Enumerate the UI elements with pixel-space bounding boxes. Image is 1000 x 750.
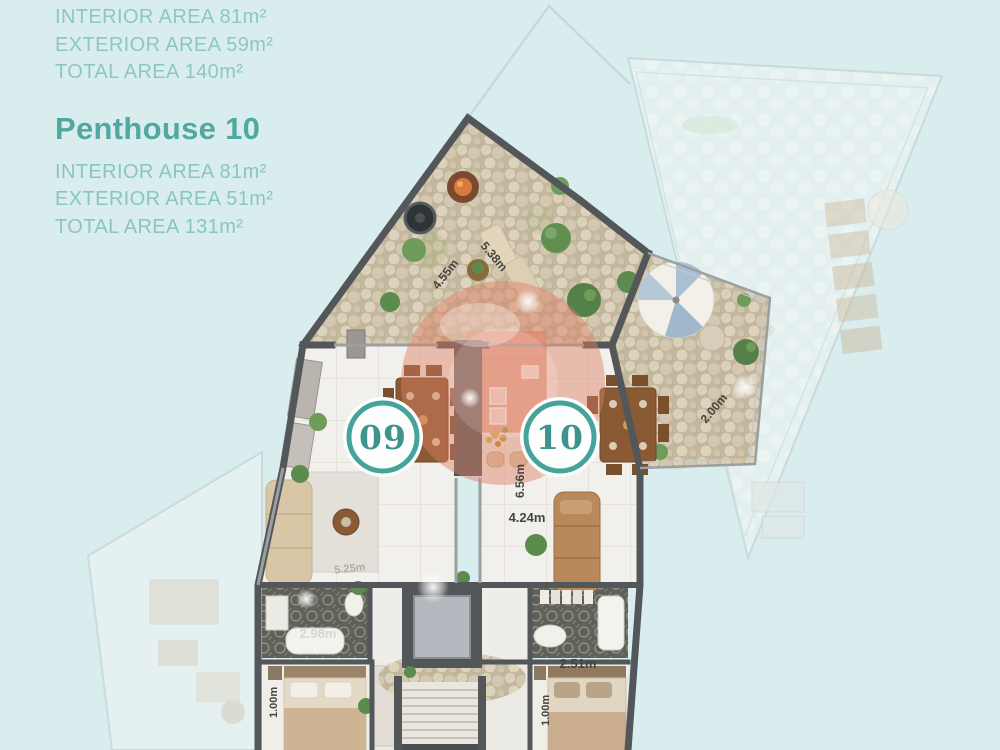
unit-number: 10 (536, 418, 584, 457)
total-area-label: TOTAL AREA 131m² (55, 214, 273, 242)
ghost-peak-lines (468, 6, 630, 118)
plant (525, 534, 547, 556)
exterior-area-label: EXTERIOR AREA 59m² (55, 32, 273, 60)
hall-10 (482, 585, 530, 662)
plant (291, 465, 309, 483)
ghost-umbrella (868, 190, 908, 230)
unit-a-areas: INTERIOR AREA 81m² EXTERIOR AREA 59m² TO… (55, 4, 273, 87)
counter-plant (309, 413, 327, 431)
unit-b-areas: INTERIOR AREA 81m² EXTERIOR AREA 51m² TO… (55, 159, 273, 242)
dimension-label: 4.24m (509, 510, 546, 525)
hot-tub (405, 203, 435, 233)
dimension-label: 2.51m (560, 656, 597, 671)
exterior-area-label: EXTERIOR AREA 51m² (55, 186, 273, 214)
unit-badge-10: 10 (520, 397, 600, 477)
interior-area-label: INTERIOR AREA 81m² (55, 4, 273, 32)
unit-number: 09 (359, 418, 407, 457)
interior-area-label: INTERIOR AREA 81m² (55, 159, 273, 187)
dimension-label: 1.00m (540, 695, 552, 726)
bed-09 (268, 666, 374, 750)
fire-pit (447, 171, 479, 203)
info-panel: INTERIOR AREA 81m² EXTERIOR AREA 59m² TO… (55, 4, 273, 241)
round-table (699, 325, 725, 351)
ghost-site-left (88, 452, 262, 750)
unit-badge-09: 09 (343, 397, 423, 477)
hall-09 (372, 585, 404, 662)
penthouse-title: Penthouse 10 (55, 111, 273, 147)
stairs (394, 676, 486, 750)
dimension-label: 6.56m (513, 464, 527, 498)
dimension-label: 1.00m (268, 687, 280, 718)
floorplan-page: INTERIOR AREA 81m² EXTERIOR AREA 59m² TO… (0, 0, 1000, 750)
plant (404, 666, 416, 678)
total-area-label: TOTAL AREA 140m² (55, 59, 273, 87)
dimension-label: 2.98m (300, 626, 337, 641)
